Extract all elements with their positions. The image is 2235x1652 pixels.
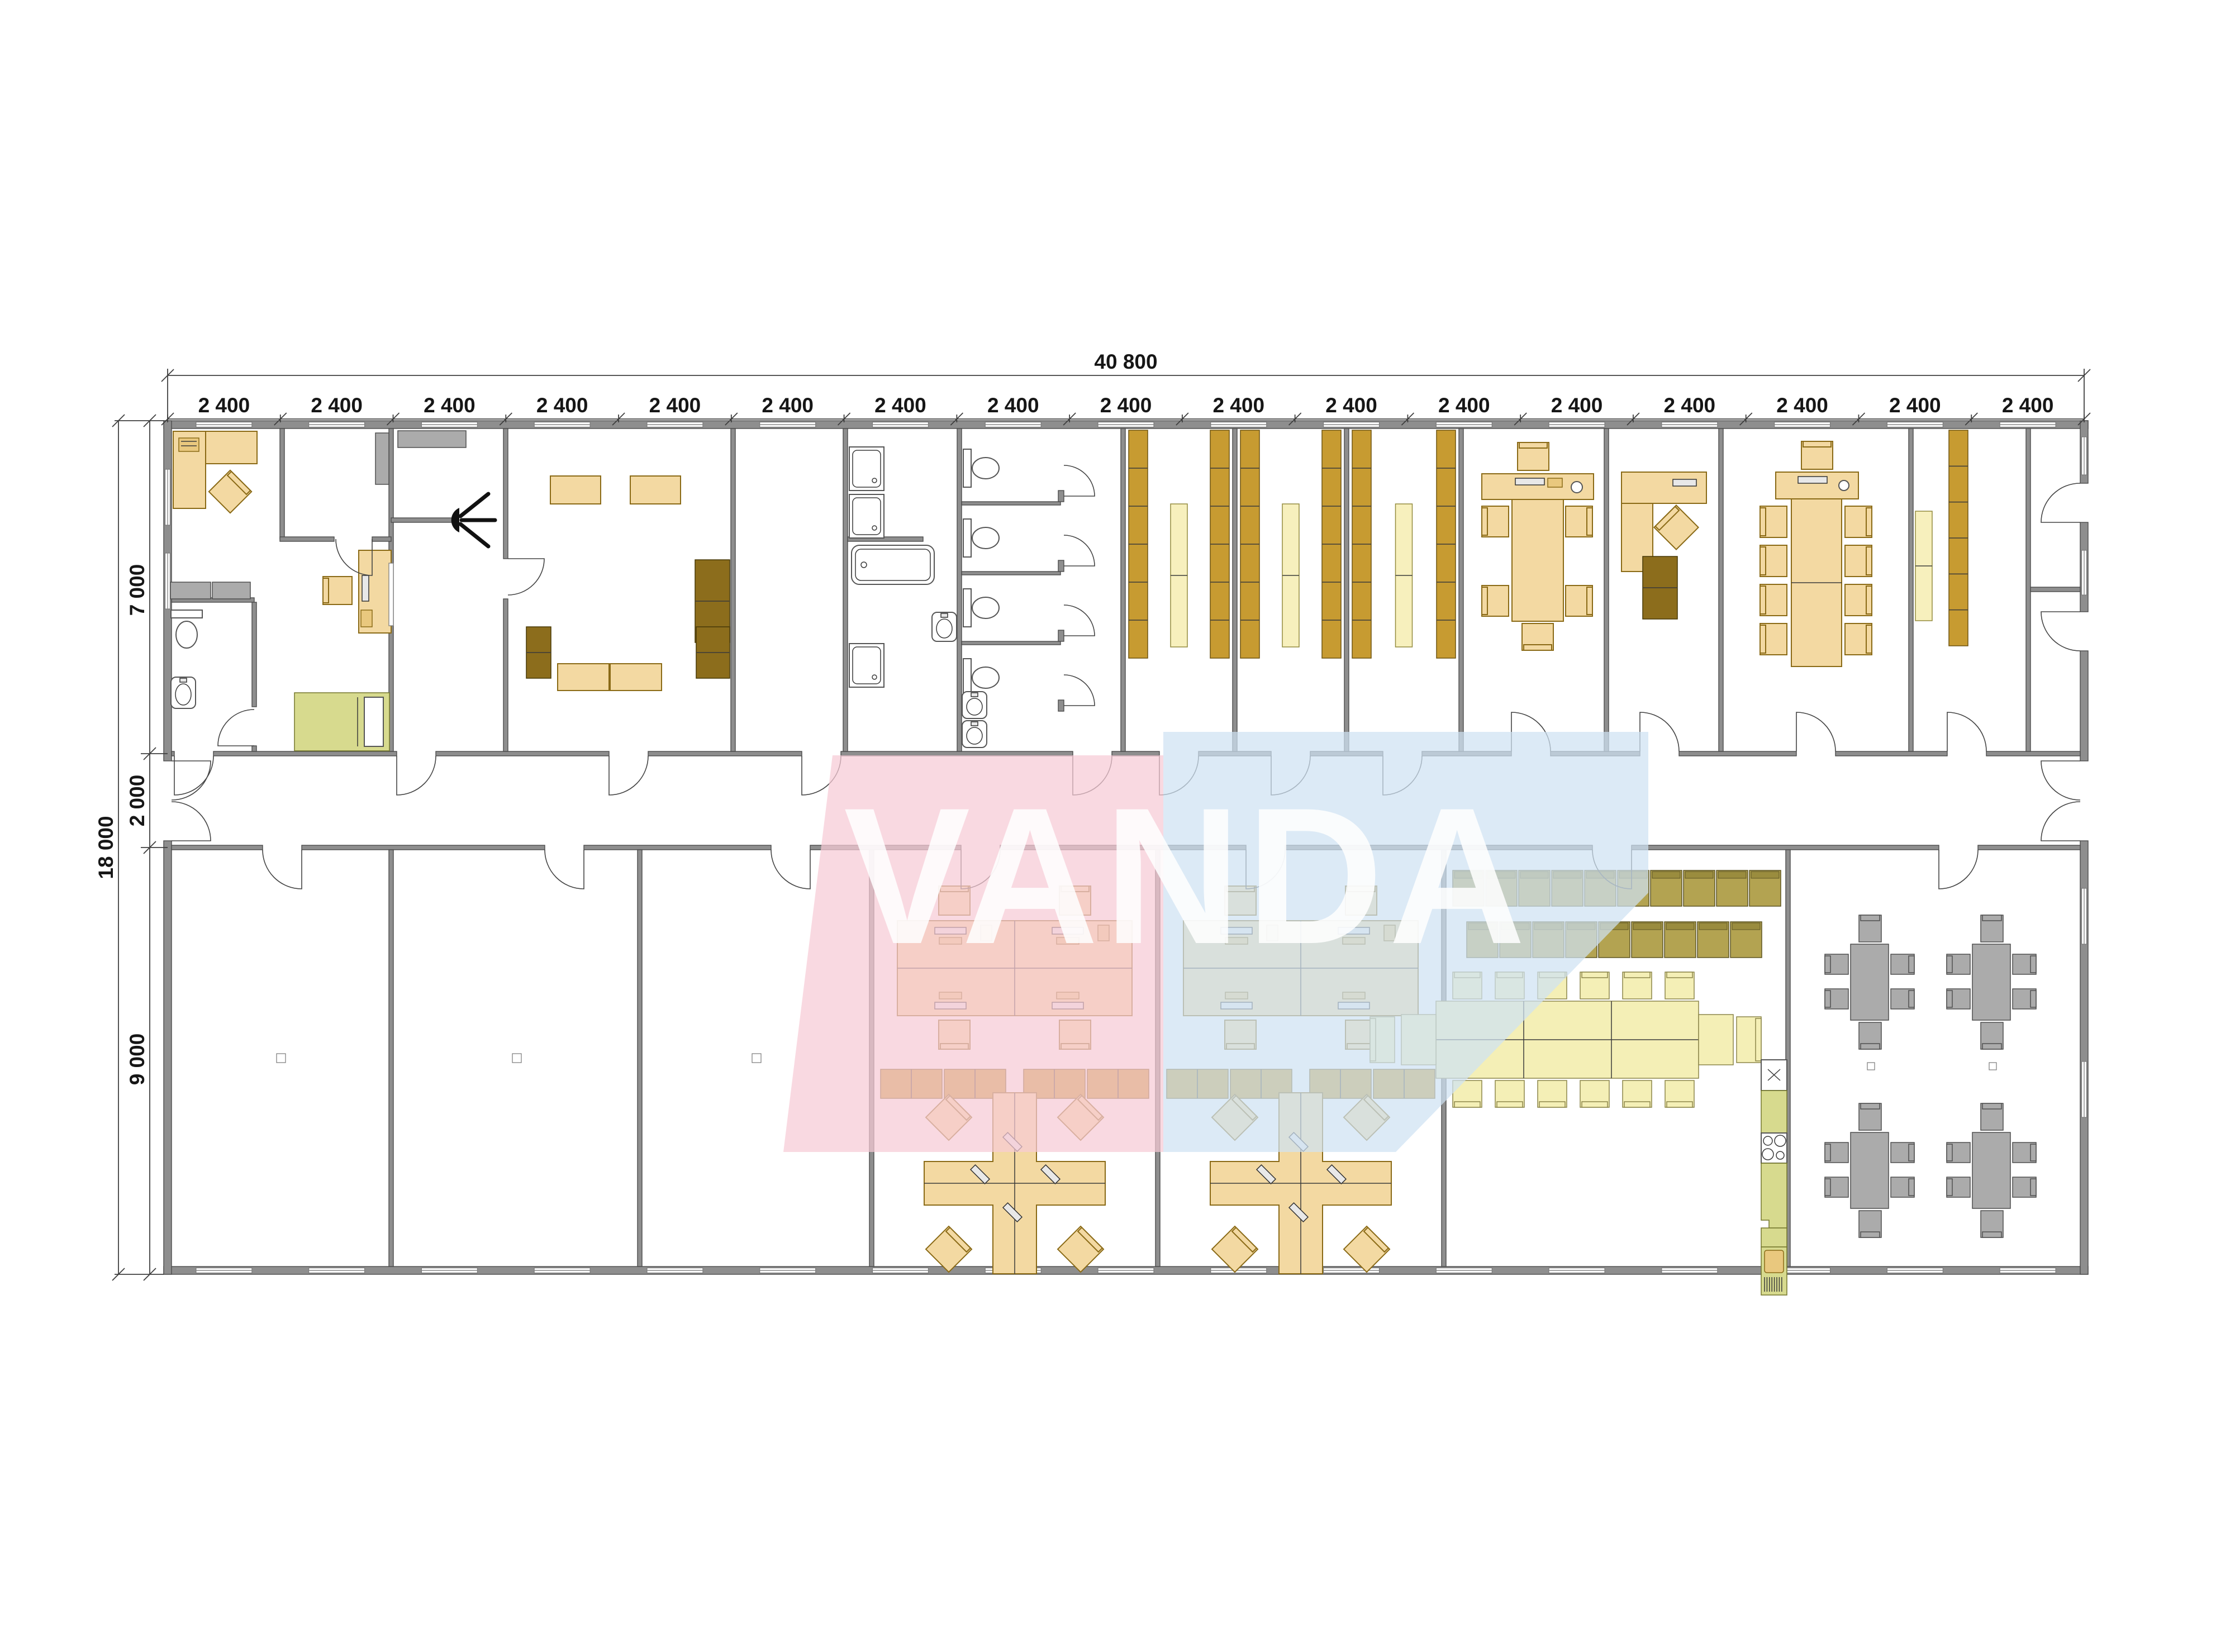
dimension-label: 2 400 — [987, 394, 1039, 417]
partition-wall — [1909, 429, 1913, 751]
chair-back — [1482, 587, 1487, 615]
dimension-label: 2 400 — [1438, 394, 1490, 417]
partition-wall — [957, 429, 962, 751]
stall-divider — [962, 641, 1061, 645]
chair-back — [1718, 872, 1746, 878]
door-swing-icon — [508, 559, 544, 595]
floor-plan-svg: 40 8002 4002 4002 4002 4002 4002 4002 40… — [0, 0, 2235, 1652]
chair-back — [1825, 1179, 1830, 1196]
chair-back — [1732, 923, 1760, 930]
toilet-icon — [972, 597, 999, 618]
desk-icon — [1621, 472, 1706, 503]
dimension-label: 2 400 — [1889, 394, 1941, 417]
chair-back — [1685, 872, 1713, 878]
partition-wall — [638, 850, 642, 1267]
meeting-room-furniture — [1760, 441, 1872, 666]
toilet-icon — [972, 667, 999, 688]
door-swing-icon — [2041, 761, 2080, 800]
partition-wall — [1719, 429, 1723, 751]
kitchen-counter-icon — [1761, 1091, 1787, 1133]
toilet-icon — [972, 458, 999, 479]
conference-table-icon — [1699, 1015, 1733, 1065]
toilet-icon — [963, 589, 971, 627]
chair-back — [1633, 923, 1661, 930]
table-icon — [550, 476, 601, 504]
reception-furniture — [1482, 442, 1594, 650]
office-chair-icon — [1212, 1226, 1258, 1272]
fridge-inner — [1765, 1250, 1784, 1273]
stall-stub — [1058, 700, 1064, 711]
toilet-icon — [176, 621, 197, 648]
dimension-label: 2 400 — [536, 394, 588, 417]
partition-wall — [1604, 429, 1609, 751]
chair-back — [1909, 991, 1914, 1007]
sink-tap — [180, 678, 187, 682]
chair-back — [1982, 915, 2001, 921]
dimension-label: 2 400 — [1212, 394, 1264, 417]
dining-table-icon — [1972, 1132, 2010, 1208]
chair-back — [1454, 1102, 1480, 1107]
corridor-wall-top — [1112, 751, 1159, 756]
dimension-label: 9 000 — [126, 1034, 149, 1086]
chair-back — [1760, 625, 1766, 653]
vestibule-wall — [372, 537, 391, 541]
corridor-wall-top — [1986, 751, 2080, 756]
office-chair-icon — [1058, 1226, 1104, 1272]
archive2-shelving — [1915, 430, 1968, 646]
monitor-icon — [362, 575, 369, 601]
shower-icon — [849, 447, 884, 491]
dining-table-icon — [1851, 1132, 1889, 1208]
vestibule-wall — [280, 537, 334, 541]
corridor-wall-bottom — [302, 845, 545, 850]
monitor-icon — [1798, 477, 1827, 483]
partition-wall — [843, 429, 848, 751]
corridor-wall-bottom — [1978, 845, 2080, 850]
chair-back — [1539, 1102, 1565, 1107]
door-swing-icon — [1064, 605, 1095, 636]
chair-back — [1866, 586, 1872, 614]
dimension-label: 2 400 — [1325, 394, 1377, 417]
stall-divider — [962, 502, 1061, 505]
sink-tap — [971, 722, 978, 726]
dimension-label: 2 400 — [1100, 394, 1152, 417]
bathtub-icon — [852, 545, 934, 584]
chair-back — [1519, 442, 1547, 448]
corridor-wall-top — [648, 751, 802, 756]
chair-back — [1861, 1044, 1880, 1049]
corridor-wall-bottom — [584, 845, 771, 850]
corridor-wall-top — [213, 751, 397, 756]
door-swing-icon — [1939, 850, 1978, 889]
shower-icon — [849, 494, 884, 538]
chair-back — [1582, 972, 1608, 978]
bathroom-furniture — [849, 447, 957, 687]
dimension-label: 2 400 — [424, 394, 475, 417]
chair-back — [1825, 991, 1830, 1007]
wc-wall — [252, 746, 256, 751]
table-icon — [1512, 499, 1563, 621]
dimension-label: 7 000 — [126, 564, 149, 616]
chair-back — [323, 578, 329, 603]
chair-back — [1667, 972, 1692, 978]
chair-back — [1866, 625, 1872, 653]
kitchen-counter-icon — [1761, 1163, 1787, 1228]
monitor-icon — [1515, 478, 1544, 485]
wall-light-icon — [460, 524, 488, 546]
chair-back — [1909, 1179, 1914, 1196]
chair-back — [1803, 441, 1831, 447]
partition-wall — [1344, 429, 1349, 751]
printer-icon — [179, 438, 199, 451]
dimension-label: 2 400 — [198, 394, 250, 417]
partition-wall — [2030, 587, 2080, 592]
chair-back — [1909, 1144, 1914, 1161]
chair-back — [1652, 872, 1680, 878]
dimension-label: 2 400 — [1551, 394, 1603, 417]
door-swing-icon — [172, 802, 211, 841]
stall-stub — [1058, 491, 1064, 502]
door-swing-icon — [2041, 483, 2080, 522]
toilet-icon — [963, 519, 971, 557]
chair-back — [1947, 956, 1952, 973]
exterior-wall-right — [2080, 651, 2088, 761]
chair-back — [1825, 956, 1830, 973]
storage-rooms — [277, 1054, 761, 1063]
chair-back — [2030, 991, 2036, 1007]
door-swing-icon — [397, 756, 436, 795]
chair-back — [1587, 508, 1592, 535]
wc-furniture — [962, 449, 999, 748]
dimension-label: 2 400 — [311, 394, 363, 417]
chair-back — [1497, 1102, 1523, 1107]
toilet-icon — [963, 449, 971, 487]
column-marker-icon — [752, 1054, 761, 1063]
dimension-label: 40 800 — [1094, 350, 1157, 373]
watermark-text: VANDA — [844, 767, 1531, 984]
partition-wall — [1121, 429, 1125, 751]
partition-wall — [503, 599, 508, 751]
chair-back — [2030, 1144, 2036, 1161]
sink-tap — [971, 693, 978, 697]
chair-back — [1982, 1103, 2001, 1109]
table-icon — [630, 476, 681, 504]
table-icon — [558, 664, 609, 691]
dimension-label: 2 400 — [1776, 394, 1828, 417]
chair-back — [1582, 1102, 1608, 1107]
hall-stub-wall — [391, 518, 457, 522]
closet-icon — [375, 433, 389, 484]
vestibule-wall — [280, 429, 284, 539]
wall-light-icon — [451, 508, 459, 532]
chair-back — [1947, 991, 1952, 1007]
chair-back — [1666, 923, 1694, 930]
chair-back — [1861, 1232, 1880, 1237]
stall-stub — [1058, 630, 1064, 641]
toilet-icon — [963, 659, 971, 697]
wc-wall — [252, 602, 256, 707]
corridor-wall-top — [1679, 751, 1796, 756]
chair-back — [1760, 547, 1766, 575]
kitchen-counter-icon — [1761, 1228, 1787, 1247]
sideboard-icon — [212, 582, 250, 599]
bed-pillow — [364, 697, 383, 746]
corridor-wall-bottom — [1632, 845, 1939, 850]
door-swing-icon — [1796, 712, 1835, 751]
corridor-wall-top — [172, 751, 174, 756]
chair-back — [1982, 1232, 2001, 1237]
corridor-wall-top — [1835, 751, 1947, 756]
office-chair-icon — [926, 1226, 972, 1272]
chair-back — [1947, 1144, 1952, 1161]
chair-back — [1861, 1103, 1880, 1109]
exterior-wall-left — [164, 841, 172, 1274]
keyboard-icon — [1548, 478, 1562, 487]
chair-back — [1909, 956, 1914, 973]
dimension-label: 2 000 — [126, 775, 149, 827]
shower-icon — [849, 644, 884, 687]
column-marker-icon — [1989, 1063, 1996, 1070]
door-swing-icon — [2041, 612, 2080, 651]
phone-icon — [1571, 482, 1582, 493]
lounge-furniture — [526, 476, 730, 691]
chair-back — [1825, 1144, 1830, 1161]
table-icon — [610, 664, 662, 691]
door-swing-icon — [771, 850, 810, 889]
chair-back — [1667, 1102, 1692, 1107]
wall-light-icon — [460, 494, 488, 516]
door-swing-icon — [218, 710, 254, 746]
column-marker-icon — [277, 1054, 286, 1063]
corridor-wall-bottom — [172, 845, 263, 850]
stall-stub — [1058, 560, 1064, 572]
stall-divider — [962, 572, 1061, 575]
partition-wall — [1233, 429, 1237, 751]
sideboard-icon — [398, 431, 466, 447]
door-swing-icon — [1064, 675, 1095, 706]
door-swing-icon — [263, 850, 302, 889]
canteen-furniture — [1825, 915, 2036, 1237]
chair-back — [1982, 1044, 2001, 1049]
partition-wall — [389, 850, 393, 1267]
door-swing-icon — [2041, 802, 2080, 841]
door-swing-icon — [1064, 535, 1095, 566]
chair-back — [1624, 1102, 1650, 1107]
door-swing-icon — [609, 756, 648, 795]
dimension-label: 18 000 — [94, 816, 117, 879]
partition-wall — [2026, 429, 2030, 751]
chair-back — [1760, 586, 1766, 614]
dining-table-icon — [1851, 944, 1889, 1020]
chair-back — [1947, 1179, 1952, 1196]
chair-back — [1482, 508, 1487, 535]
pc-tower-icon — [361, 610, 372, 627]
partition-wall — [503, 429, 508, 559]
sideboard-icon — [170, 582, 211, 599]
dimension-label: 2 400 — [762, 394, 814, 417]
door-swing-icon — [1947, 712, 1986, 751]
dimension-label: 2 400 — [649, 394, 701, 417]
monitor-icon — [1673, 479, 1696, 486]
chair-back — [1760, 508, 1766, 536]
door-swing-icon — [545, 850, 584, 889]
partition-wall — [731, 429, 735, 751]
dining-table-icon — [1972, 944, 2010, 1020]
corridor-wall-top — [841, 751, 1073, 756]
chair-back — [1866, 547, 1872, 575]
chair-back — [1624, 972, 1650, 978]
chair-back — [1756, 1018, 1761, 1061]
door-swing-icon — [1064, 465, 1095, 496]
chair-back — [2030, 956, 2036, 973]
toilet-icon — [171, 610, 202, 618]
interior-window — [389, 563, 393, 626]
dimension-label: 2 400 — [1664, 394, 1716, 417]
chair-back — [1587, 587, 1592, 615]
sink-tap — [941, 613, 948, 617]
dimension-label: 2 400 — [2002, 394, 2054, 417]
office-chair-icon — [1344, 1226, 1390, 1272]
chair-back — [1751, 872, 1779, 878]
dimension-label: 2 400 — [874, 394, 926, 417]
archive-shelving — [1129, 430, 1456, 658]
manager-office-furniture — [1621, 472, 1706, 619]
office-chair-icon — [209, 470, 251, 513]
kitchenette — [1761, 1060, 1787, 1295]
partition-wall — [1459, 429, 1463, 751]
chair-back — [1524, 645, 1552, 650]
phone-icon — [1839, 480, 1849, 491]
floor-plan-page: 40 8002 4002 4002 4002 4002 4002 4002 40… — [0, 0, 2235, 1652]
column-marker-icon — [1867, 1063, 1875, 1070]
chair-back — [1861, 915, 1880, 921]
hall-furniture — [398, 431, 495, 546]
office-chair-icon — [1654, 505, 1698, 549]
chair-back — [2030, 1179, 2036, 1196]
chair-back — [1866, 508, 1872, 536]
toilet-icon — [972, 527, 999, 549]
corridor-wall-top — [436, 751, 609, 756]
chair-back — [1699, 923, 1727, 930]
column-marker-icon — [512, 1054, 521, 1063]
